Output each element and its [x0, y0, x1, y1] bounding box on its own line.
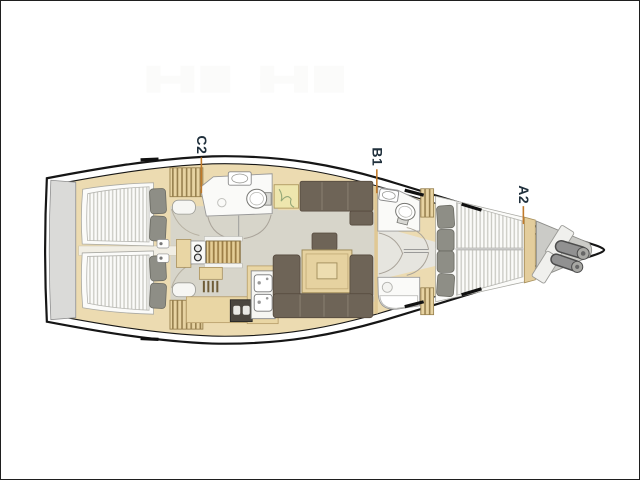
forward-cabin-berth: [436, 196, 530, 302]
label-c2-text: C2: [194, 135, 210, 154]
salon-wall-fwd: [374, 186, 377, 313]
yacht-layout-plan: C2 B1 A2: [0, 0, 640, 480]
salon-table: [302, 250, 352, 293]
label-b1-text: B1: [369, 147, 385, 166]
sink-aft-head: [228, 172, 251, 185]
stove: [230, 300, 252, 322]
sink-forward-head: [379, 188, 399, 202]
watermark: [147, 66, 344, 93]
layout-drawing: C2 B1 A2: [1, 1, 639, 479]
chart-table: [274, 185, 298, 208]
salon-chair: [312, 233, 337, 250]
galley-sink: [251, 271, 275, 319]
label-a2-text: A2: [516, 185, 532, 204]
bow-anchor-locker: [524, 217, 591, 284]
swim-platform: [49, 180, 76, 319]
